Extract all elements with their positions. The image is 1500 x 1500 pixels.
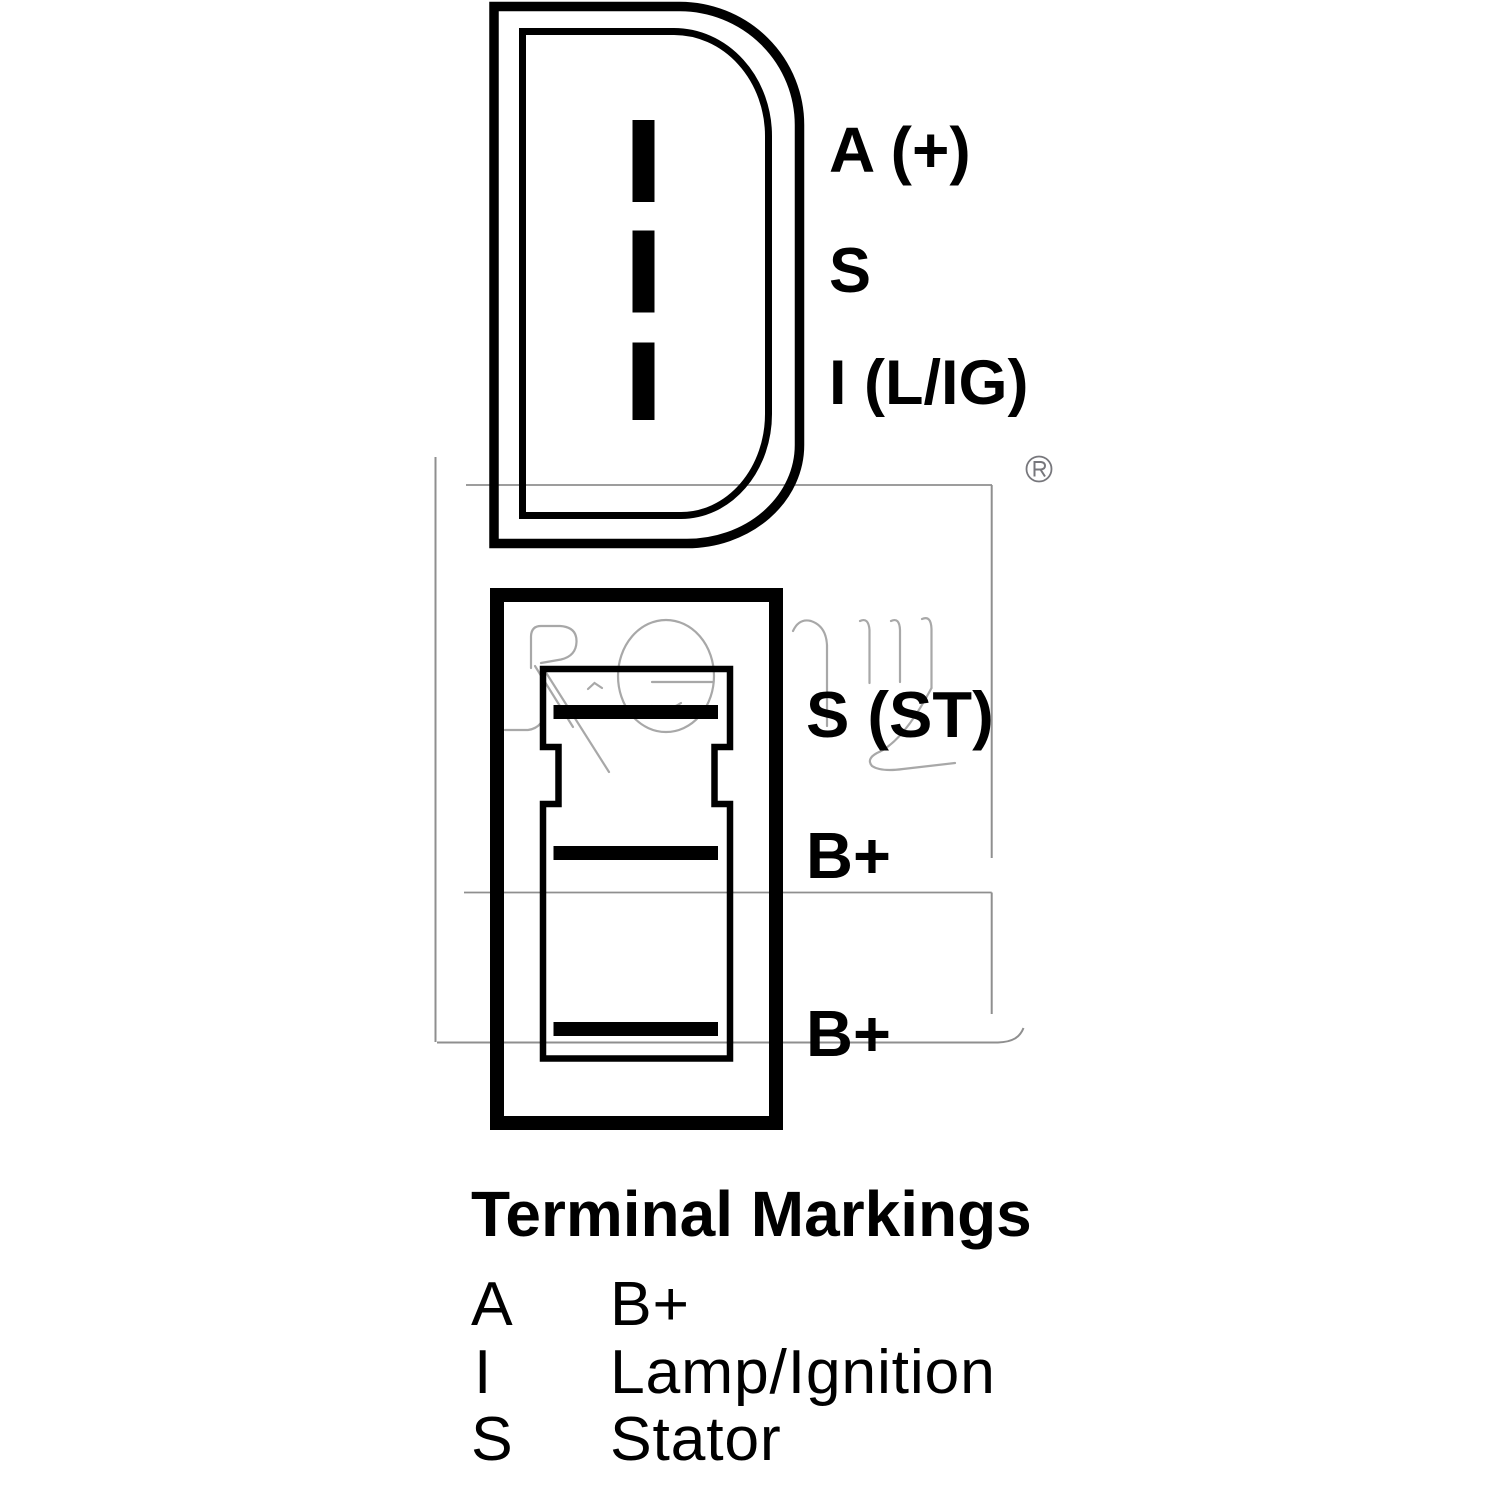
svg-text:S (ST): S (ST) xyxy=(806,678,994,751)
svg-text:S: S xyxy=(829,236,871,306)
svg-text:I (L/IG): I (L/IG) xyxy=(829,348,1028,418)
svg-text:B+: B+ xyxy=(806,819,891,892)
svg-text:A: A xyxy=(471,1269,513,1339)
svg-text:Stator: Stator xyxy=(610,1404,782,1474)
svg-text:Terminal Markings: Terminal Markings xyxy=(471,1178,1032,1250)
svg-text:I: I xyxy=(474,1337,491,1407)
svg-text:B+: B+ xyxy=(610,1269,690,1339)
svg-text:S: S xyxy=(471,1404,513,1474)
svg-text:B+: B+ xyxy=(806,997,891,1070)
svg-text:Lamp/Ignition: Lamp/Ignition xyxy=(610,1337,996,1407)
svg-text:A (+): A (+) xyxy=(829,114,971,186)
